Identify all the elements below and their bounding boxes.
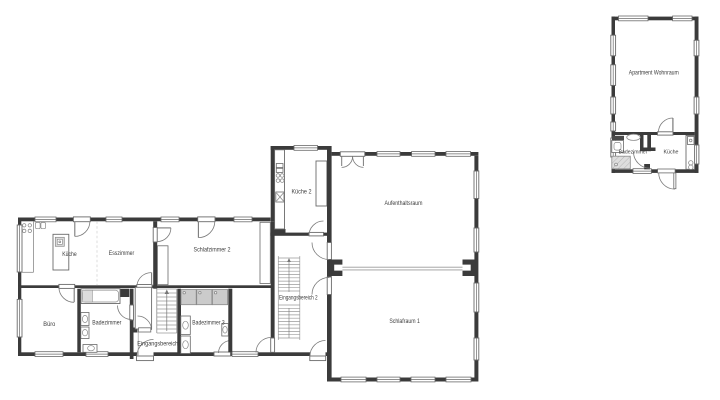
svg-text:Badezimmer: Badezimmer — [619, 149, 648, 155]
svg-text:Esszimmer: Esszimmer — [109, 250, 134, 257]
svg-text:Badezimmer: Badezimmer — [92, 320, 121, 327]
svg-text:Schlafzimmer 2: Schlafzimmer 2 — [194, 247, 232, 254]
svg-text:Badezimmer 3: Badezimmer 3 — [192, 319, 225, 326]
svg-text:Eingangsbereich 2: Eingangsbereich 2 — [279, 294, 318, 301]
svg-text:Büro: Büro — [43, 321, 56, 328]
svg-text:Küche: Küche — [62, 251, 77, 258]
svg-text:Küche 2: Küche 2 — [292, 188, 313, 195]
svg-text:Küche: Küche — [664, 149, 679, 155]
svg-text:Aufenthaltsraum: Aufenthaltsraum — [385, 200, 423, 207]
svg-text:Eingangsbereich: Eingangsbereich — [137, 340, 178, 347]
svg-text:Schlafraum 1: Schlafraum 1 — [389, 318, 420, 325]
svg-text:Apartment Wohnraum: Apartment Wohnraum — [629, 70, 679, 77]
